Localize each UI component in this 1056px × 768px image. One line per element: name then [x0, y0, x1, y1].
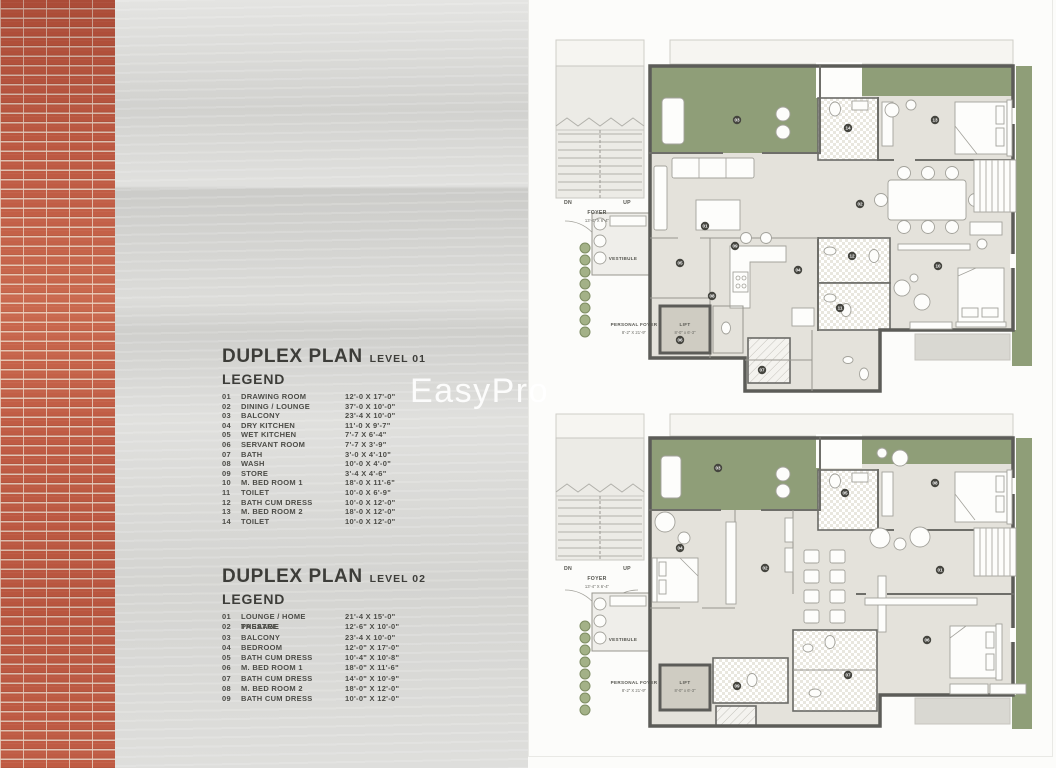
- legend-level-02: DUPLEX PLAN LEVEL 02 LEGEND 01LOUNGE / H…: [222, 566, 432, 705]
- svg-text:02: 02: [857, 202, 863, 207]
- foyer-dim: 13'-4" X 6'-4": [585, 584, 610, 589]
- up-label: UP: [623, 200, 631, 206]
- landscape-bushes: [580, 243, 590, 337]
- legend-items-1: 01DRAWING ROOM12'-0 X 17'-0"02DINING / L…: [222, 392, 432, 526]
- up-label: UP: [623, 566, 631, 572]
- rear-ledge: [915, 334, 1010, 360]
- legend-row: 08M. BED ROOM 218'-0" X 12'-0": [222, 684, 432, 694]
- legend-level-01: DUPLEX PLAN LEVEL 01 LEGEND 01DRAWING RO…: [222, 346, 432, 526]
- legend-row: 10M. BED ROOM 118'-0 X 11'-6": [222, 478, 432, 488]
- legend-row: 06M. BED ROOM 118'-0" X 11'-6": [222, 663, 432, 673]
- legend-row: 04DRY KITCHEN11'-0 X 9'-7": [222, 421, 432, 431]
- legend-row: 02PASSAGE12'-6" X 10'-0": [222, 622, 432, 632]
- legend-row: 05WET KITCHEN7'-7 X 6'-4": [222, 430, 432, 440]
- lift-dim: 8'-0" x 6'-3": [674, 688, 696, 693]
- svg-text:04: 04: [795, 268, 801, 273]
- lift-dim: 8'-0" x 6'-3": [674, 330, 696, 335]
- plan-title-text: DUPLEX PLAN: [222, 566, 363, 588]
- svg-text:02: 02: [762, 566, 768, 571]
- svg-text:05: 05: [677, 261, 683, 266]
- svg-text:07: 07: [845, 673, 851, 678]
- lift-label: LIFT: [680, 322, 691, 327]
- svg-text:07: 07: [759, 368, 765, 373]
- legend-row: 13M. BED ROOM 218'-0 X 12'-0": [222, 507, 432, 517]
- landscape-bushes: [580, 621, 590, 715]
- svg-text:12: 12: [849, 254, 855, 259]
- floor-plan-level-01: DN UP FOYER 13'-4" X 6'-4" VESTIBULE PER…: [530, 8, 1056, 396]
- legend-row: 07BATH CUM DRESS14'-0" X 10'-9": [222, 674, 432, 684]
- svg-text:04: 04: [677, 546, 683, 551]
- plan-level-text: LEVEL 01: [370, 353, 426, 365]
- legend-row: 09BATH CUM DRESS10'-0" X 12'-0": [222, 694, 432, 704]
- vestibule-label: VESTIBULE: [609, 256, 637, 261]
- terrace-outline: [670, 40, 1013, 64]
- legend-row: 09STORE3'-4 X 4'-6": [222, 469, 432, 479]
- floor-plan-level-02: DN UP FOYER 13'-4" X 6'-4" VESTIBULE PER…: [530, 398, 1056, 763]
- legend-row: 03BALCONY23'-4 X 10'-0": [222, 411, 432, 421]
- personal-foyer-label: PERSONAL FOYER: [611, 322, 658, 327]
- rear-ledge: [915, 698, 1010, 724]
- legend-row: 04BEDROOM12'-0" X 17'-0": [222, 643, 432, 653]
- legend-row: 08WASH10'-0 X 4'-0": [222, 459, 432, 469]
- svg-text:06: 06: [677, 338, 683, 343]
- vestibule-label: VESTIBULE: [609, 637, 637, 642]
- plan-level-text: LEVEL 02: [370, 573, 426, 585]
- legend-heading: LEGEND: [222, 371, 432, 387]
- svg-text:08: 08: [709, 294, 715, 299]
- legend-items-2: 01LOUNGE / HOME THEATRE21'-4 X 15'-0"02P…: [222, 612, 432, 705]
- personal-foyer-dim: 8'-2" X 21'-9": [622, 688, 647, 693]
- vestibule-room: [592, 593, 650, 651]
- legend-row: 06SERVANT ROOM7'-7 X 3'-9": [222, 440, 432, 450]
- svg-text:06: 06: [924, 638, 930, 643]
- legend-row: 11TOILET10'-0 X 6'-9": [222, 488, 432, 498]
- svg-text:13: 13: [932, 118, 938, 123]
- legend-row: 07BATH3'-0 X 4'-10": [222, 450, 432, 460]
- svg-text:01: 01: [702, 224, 708, 229]
- legend-heading: LEGEND: [222, 591, 432, 607]
- foyer-dim: 13'-4" X 6'-4": [585, 218, 610, 223]
- lift-label: LIFT: [680, 680, 691, 685]
- svg-text:11: 11: [838, 306, 843, 311]
- legend-row: 01LOUNGE / HOME THEATRE21'-4 X 15'-0": [222, 612, 432, 622]
- plan-title-level-01: DUPLEX PLAN LEVEL 01: [222, 346, 432, 368]
- plan-title-text: DUPLEX PLAN: [222, 346, 363, 368]
- svg-text:01: 01: [937, 568, 943, 573]
- svg-text:14: 14: [845, 126, 851, 131]
- legend-row: 02DINING / LOUNGE37'-0 X 10'-0": [222, 402, 432, 412]
- legend-row: 14TOILET10'-0 X 12'-0": [222, 517, 432, 527]
- svg-text:08: 08: [932, 481, 938, 486]
- legend-row: 12BATH CUM DRESS10'-0 X 12'-0": [222, 498, 432, 508]
- dn-label: DN: [564, 200, 572, 206]
- svg-text:03: 03: [734, 118, 740, 123]
- plan-title-level-02: DUPLEX PLAN LEVEL 02: [222, 566, 432, 588]
- svg-text:09: 09: [734, 684, 740, 689]
- legend-row: 05BATH CUM DRESS10'-4" X 10'-8": [222, 653, 432, 663]
- personal-foyer-label: PERSONAL FOYER: [611, 680, 658, 685]
- svg-text:09: 09: [732, 244, 738, 249]
- dn-label: DN: [564, 566, 572, 572]
- foyer-label: FOYER: [587, 210, 606, 216]
- svg-text:05: 05: [842, 491, 848, 496]
- legend-row: 01DRAWING ROOM12'-0 X 17'-0": [222, 392, 432, 402]
- svg-text:03: 03: [715, 466, 721, 471]
- personal-foyer-dim: 8'-2" X 21'-9": [622, 330, 647, 335]
- page: EasyPro DUPLEX PLAN LEVEL 01 LEGEND 01DR…: [0, 0, 1056, 768]
- foyer-label: FOYER: [587, 576, 606, 582]
- terrace-outline: [670, 414, 1013, 436]
- brick-texture: [0, 0, 115, 768]
- svg-text:10: 10: [935, 264, 941, 269]
- legend-row: 03BALCONY23'-4 X 10'-0": [222, 633, 432, 643]
